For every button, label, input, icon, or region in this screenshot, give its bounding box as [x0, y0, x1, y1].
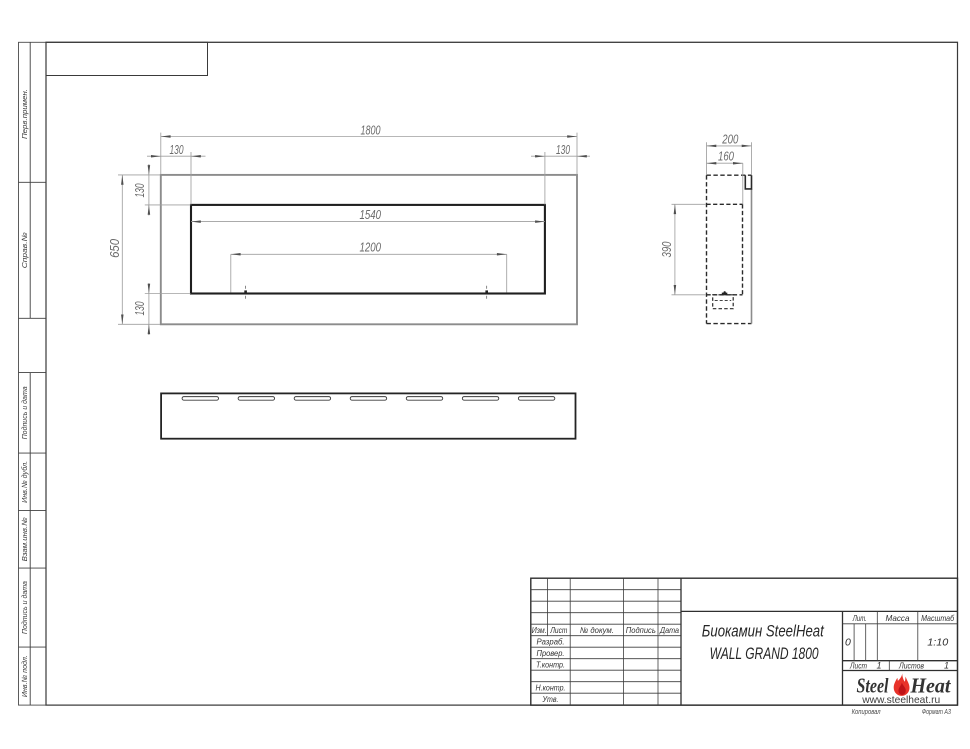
svg-text:Лист: Лист	[550, 625, 568, 635]
svg-text:1: 1	[876, 661, 881, 671]
svg-text:Подпись и дата: Подпись и дата	[20, 386, 29, 439]
svg-text:Масштаб: Масштаб	[921, 613, 954, 623]
svg-text:Изм.: Изм.	[532, 625, 547, 635]
svg-text:1540: 1540	[359, 207, 381, 222]
svg-text:650: 650	[107, 238, 122, 258]
svg-text:Т.контр.: Т.контр.	[536, 660, 565, 670]
svg-text:390: 390	[659, 241, 674, 258]
svg-text:Подпись: Подпись	[626, 625, 656, 635]
svg-text:Инв.№ дубл.: Инв.№ дубл.	[20, 461, 29, 503]
svg-text:130: 130	[556, 142, 570, 157]
svg-text:№ докум.: № докум.	[580, 625, 614, 635]
svg-text:0: 0	[845, 636, 851, 648]
svg-text:1: 1	[944, 661, 949, 671]
svg-text:Утв.: Утв.	[542, 694, 559, 704]
svg-text:1800: 1800	[361, 123, 382, 138]
svg-text:Масса: Масса	[886, 613, 910, 623]
svg-text:www.steelheat.ru: www.steelheat.ru	[861, 694, 940, 706]
svg-text:Провер.: Провер.	[537, 648, 565, 658]
svg-text:Дата: Дата	[659, 625, 679, 635]
svg-text:Лит.: Лит.	[852, 613, 867, 623]
svg-text:160: 160	[718, 149, 735, 164]
svg-text:WALL GRAND 1800: WALL GRAND 1800	[710, 644, 819, 663]
svg-text:Лист: Лист	[849, 661, 867, 671]
svg-text:Копировал: Копировал	[852, 707, 882, 716]
svg-text:Листов: Листов	[898, 661, 924, 671]
svg-text:Справ.№: Справ.№	[20, 232, 29, 268]
svg-text:130: 130	[132, 301, 147, 315]
svg-text:Перв.примен.: Перв.примен.	[20, 89, 29, 139]
svg-text:Взам.инв.№: Взам.инв.№	[20, 517, 29, 561]
svg-text:Разраб.: Разраб.	[537, 637, 565, 647]
svg-text:1200: 1200	[359, 239, 381, 254]
svg-text:Подпись и дата: Подпись и дата	[20, 581, 29, 634]
svg-text:200: 200	[722, 131, 739, 146]
svg-text:Биокамин SteelHeat: Биокамин SteelHeat	[702, 622, 825, 641]
svg-text:Н.контр.: Н.контр.	[536, 683, 566, 693]
svg-text:1:10: 1:10	[927, 636, 948, 648]
svg-text:130: 130	[132, 183, 147, 197]
svg-text:130: 130	[170, 142, 184, 157]
svg-text:Инв.№ подл.: Инв.№ подл.	[20, 655, 29, 697]
svg-text:Формат А3: Формат А3	[922, 707, 952, 716]
